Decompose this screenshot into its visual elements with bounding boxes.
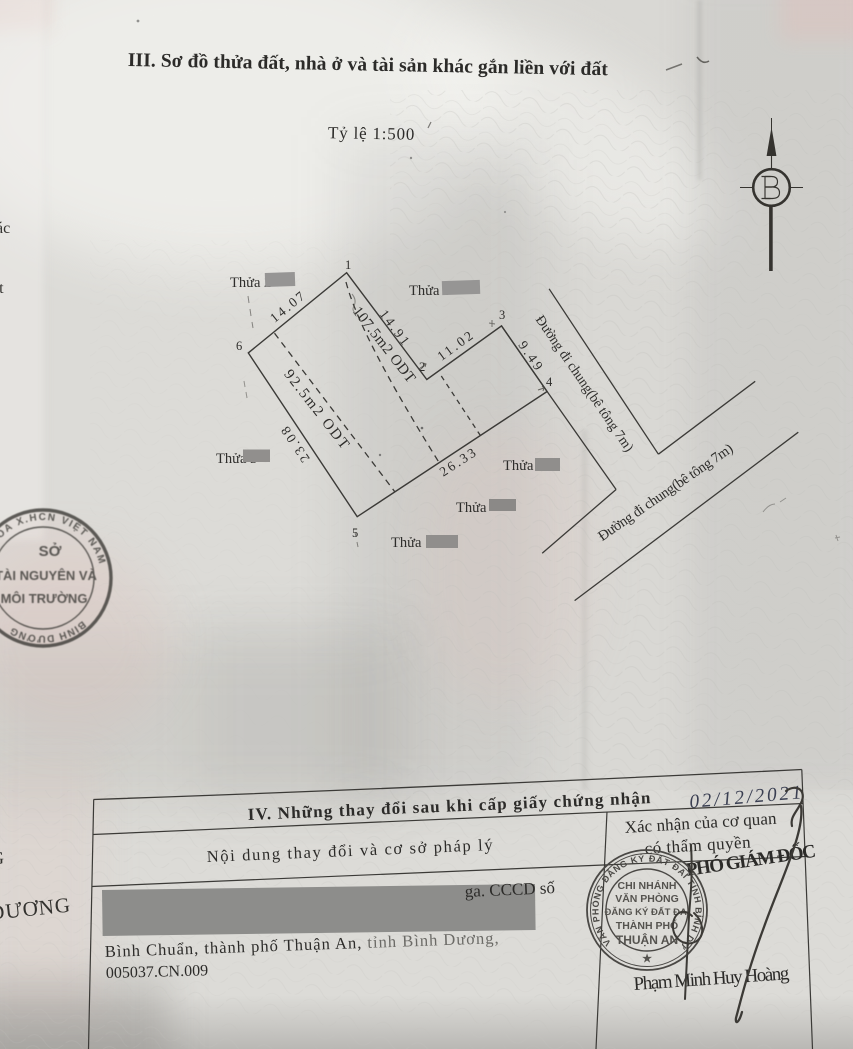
svg-text:02/12/2021: 02/12/2021: [689, 782, 805, 813]
svg-text:CHI NHÁNH: CHI NHÁNH: [618, 879, 677, 892]
svg-text:9.49: 9.49: [515, 338, 546, 373]
svg-text:★: ★: [642, 953, 652, 965]
svg-text:Đường đi chung(bê tông 7m): Đường đi chung(bê tông 7m): [532, 313, 636, 455]
svg-text:14.07: 14.07: [267, 288, 308, 325]
svg-text:3: 3: [499, 308, 505, 322]
svg-text:ĐĂNG KÝ ĐẤT ĐAI: ĐĂNG KÝ ĐẤT ĐAI: [605, 906, 690, 918]
svg-text:Thửa: Thửa: [503, 458, 534, 474]
svg-text:THÀNH PHỐ: THÀNH PHỐ: [616, 918, 678, 932]
svg-text:VĂN PHÒNG: VĂN PHÒNG: [615, 892, 679, 905]
svg-text:Phạm Minh Huy Hoàng: Phạm Minh Huy Hoàng: [633, 963, 791, 995]
svg-text:ga. CCCD số: ga. CCCD số: [464, 878, 555, 901]
svg-text:Xác nhận của cơ quan: Xác nhận của cơ quan: [624, 809, 777, 837]
svg-text:Bình Chuẩn, thành phố Thuận An: Bình Chuẩn, thành phố Thuận An, tỉnh Bìn…: [104, 928, 498, 961]
svg-text:14.91: 14.91: [377, 307, 413, 348]
svg-text:Thửa 3: Thửa 3: [409, 283, 450, 299]
svg-text:ất: ất: [0, 280, 4, 297]
svg-text:Thửa: Thửa: [391, 535, 422, 551]
svg-text:TÀI NGUYÊN VÀ: TÀI NGUYÊN VÀ: [0, 568, 98, 583]
svg-text:PHÓ GIÁM ĐỐC: PHÓ GIÁM ĐỐC: [684, 840, 817, 881]
svg-text:DƯƠNG: DƯƠNG: [0, 893, 72, 925]
svg-text:1: 1: [345, 258, 351, 272]
svg-text:MÔI TRƯỜNG: MÔI TRƯỜNG: [1, 591, 88, 606]
svg-text:G: G: [0, 848, 4, 868]
svg-text:23.08: 23.08: [278, 424, 313, 466]
svg-text:005037.CN.009: 005037.CN.009: [106, 962, 209, 982]
svg-text:Thửa 2: Thửa 2: [230, 275, 271, 291]
svg-text:IV. Những thay đổi sau khi cấp: IV. Những thay đổi sau khi cấp giấy chứn…: [247, 788, 651, 824]
svg-text:Nội dung thay đổi và cơ sở phá: Nội dung thay đổi và cơ sở pháp lý: [206, 835, 493, 866]
svg-text:Thửa: Thửa: [456, 500, 487, 516]
svg-text:2: 2: [419, 360, 425, 374]
svg-text:SỞ: SỞ: [39, 542, 62, 560]
svg-text:ác: ác: [0, 220, 10, 237]
svg-text:Đường đi chung(bê tông 7m): Đường đi chung(bê tông 7m): [595, 441, 736, 545]
svg-text:HÒA X.HCN VIỆT NAM: HÒA X.HCN VIỆT NAM: [0, 512, 107, 566]
svg-text:107.5m2 ODT: 107.5m2 ODT: [349, 304, 418, 386]
svg-text:6: 6: [236, 339, 242, 353]
svg-text:có thẩm quyền: có thẩm quyền: [644, 833, 751, 858]
svg-text:26.33: 26.33: [437, 445, 479, 480]
svg-text:4: 4: [546, 375, 553, 389]
svg-text:Thửa 3: Thửa 3: [216, 451, 257, 467]
svg-text:BÌNH DƯƠNG: BÌNH DƯƠNG: [8, 618, 88, 644]
svg-text:11.02: 11.02: [434, 328, 475, 364]
svg-text:92.5m2 ODT: 92.5m2 ODT: [280, 367, 352, 452]
svg-text:THUẬN AN: THUẬN AN: [616, 932, 678, 947]
svg-text:5: 5: [352, 526, 358, 540]
